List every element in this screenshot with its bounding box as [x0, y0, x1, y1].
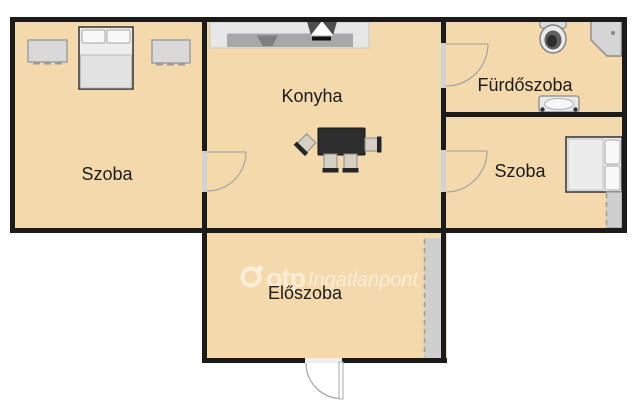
- chair-icon: [365, 137, 382, 153]
- wardrobe-icon: [424, 238, 441, 358]
- entrance-door: [305, 358, 343, 399]
- wall-outer-right: [622, 17, 627, 233]
- toilet-icon: [540, 19, 566, 53]
- label-szoba-right: Szoba: [494, 161, 546, 181]
- label-konyha: Konyha: [281, 86, 343, 106]
- dresser-icon: [28, 40, 67, 65]
- floor-plan: otp Ingatlanpont: [0, 0, 640, 414]
- wall-bath-szoba: [441, 112, 627, 117]
- floor-plan-canvas: otp Ingatlanpont: [0, 0, 640, 414]
- dresser-icon: [152, 40, 190, 66]
- label-eloszoba: Előszoba: [268, 283, 343, 303]
- wall-outer-top: [10, 17, 627, 22]
- double-bed-icon: [79, 27, 133, 89]
- wall-main-bottom: [10, 228, 627, 233]
- chair-icon: [323, 154, 339, 173]
- label-furdoszoba: Fürdőszoba: [477, 75, 573, 95]
- chair-icon: [343, 154, 359, 173]
- label-szoba-left: Szoba: [81, 164, 133, 184]
- dining-table-icon: [318, 128, 365, 155]
- wardrobe-icon: [606, 192, 622, 228]
- double-bed-icon: [566, 137, 622, 192]
- wall-outer-left: [10, 17, 15, 233]
- kitchen-counter-icon: [210, 22, 369, 48]
- washbasin-icon: [539, 96, 579, 112]
- otp-logo-dot-icon: [257, 266, 263, 272]
